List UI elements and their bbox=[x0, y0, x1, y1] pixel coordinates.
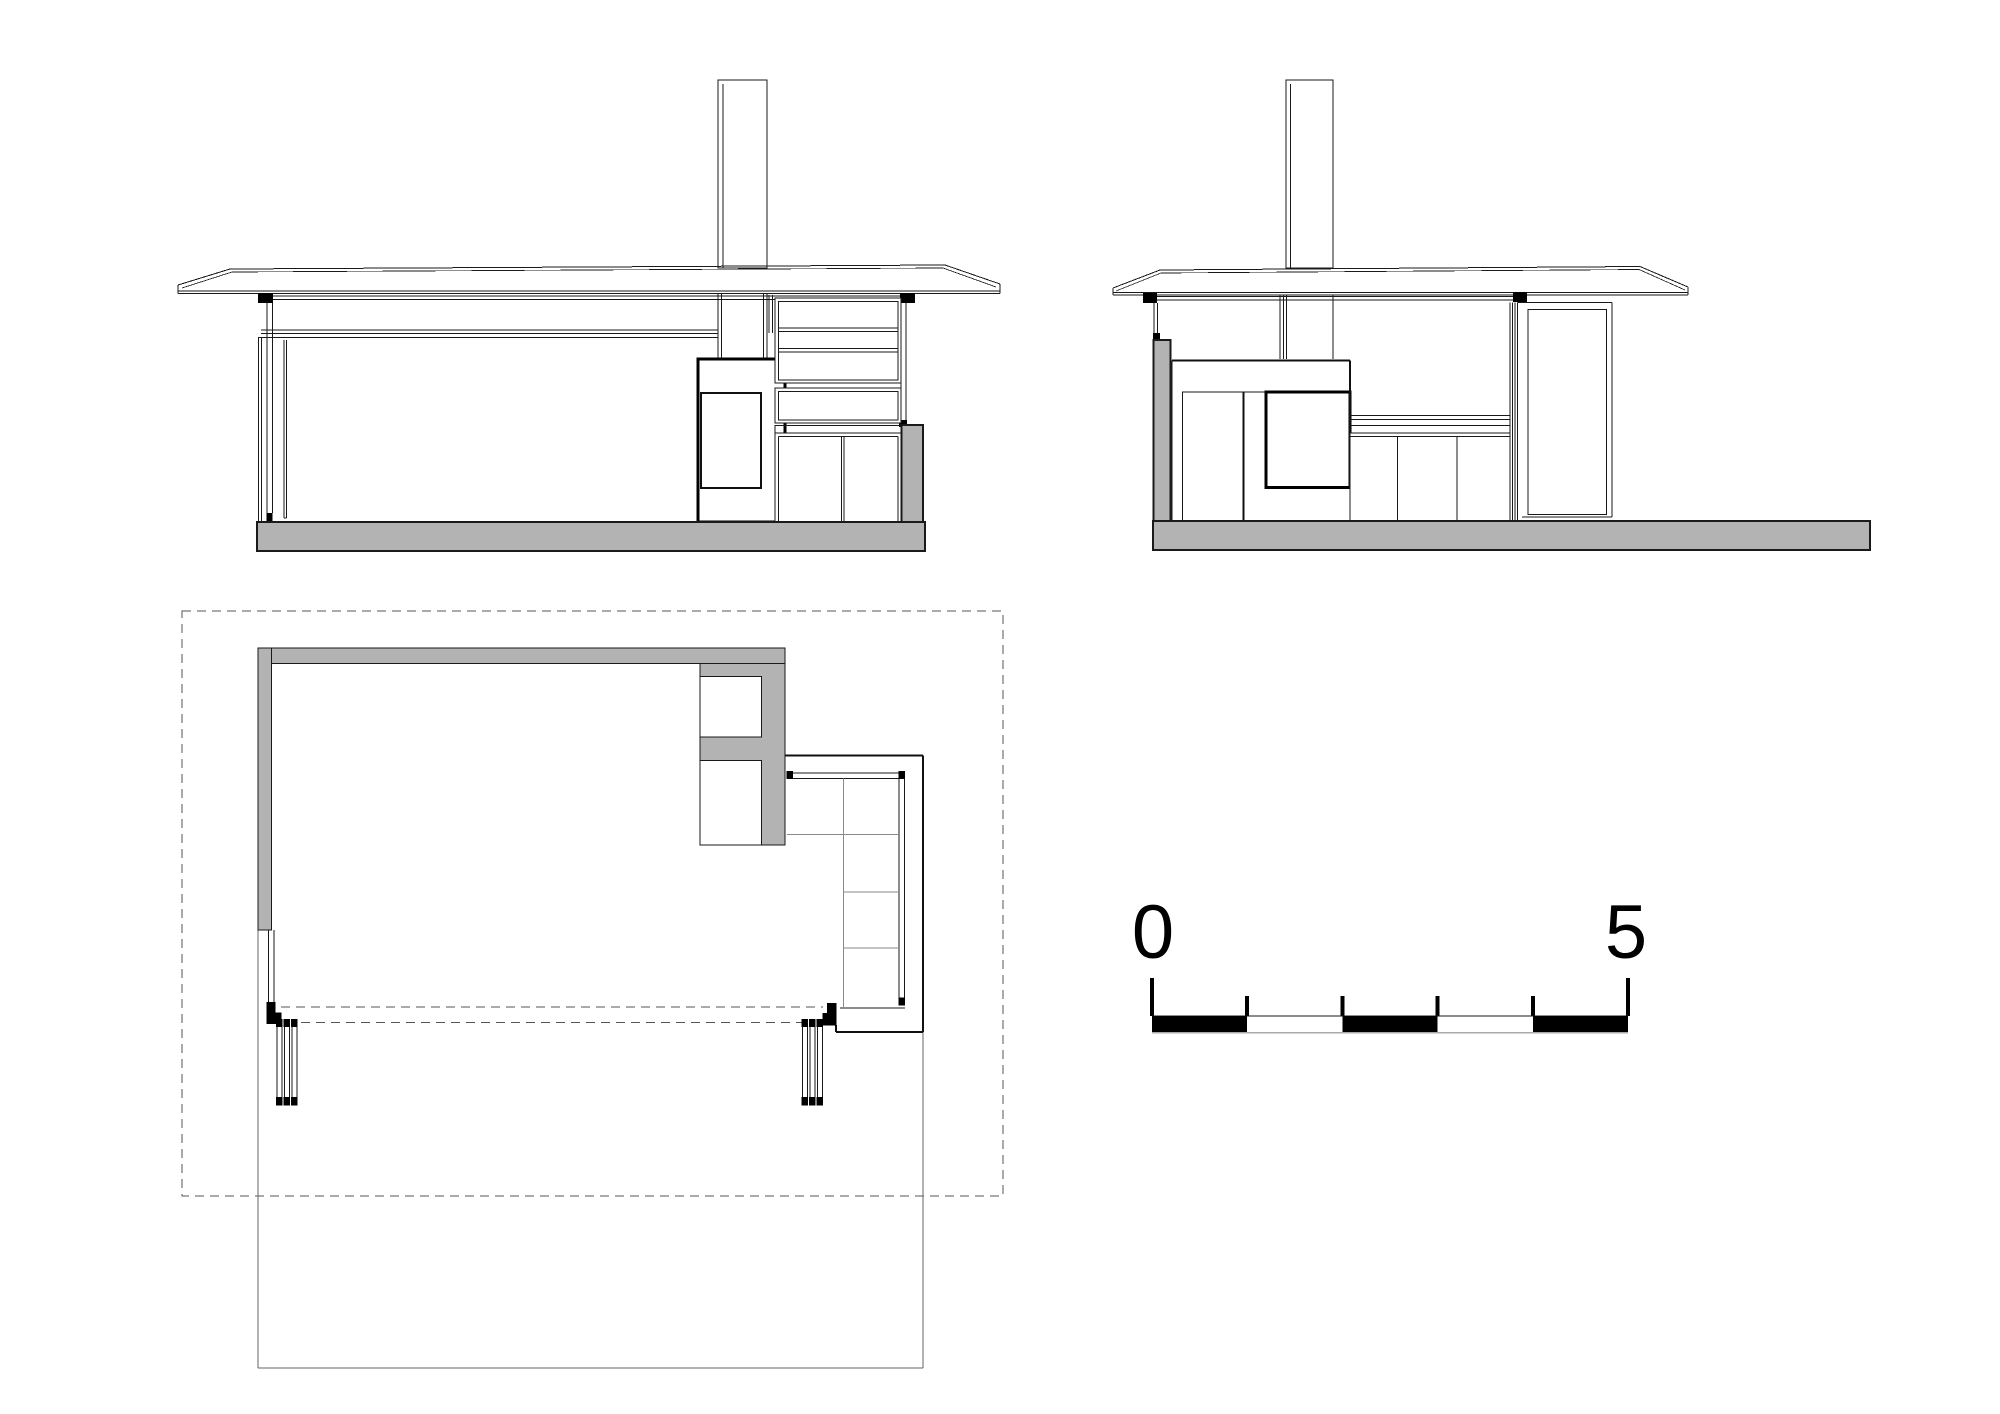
scale-segment-filled bbox=[1533, 1016, 1628, 1032]
sliding-panel bbox=[291, 1019, 298, 1106]
roof-connector-square-left bbox=[1143, 293, 1157, 303]
sill-band bbox=[1350, 416, 1510, 434]
fireplace-niche-lower bbox=[700, 761, 762, 846]
clerestory-band bbox=[258, 295, 773, 338]
roof-slab bbox=[1113, 267, 1688, 296]
cabinet-box bbox=[1350, 433, 1510, 522]
chimney-shaft bbox=[718, 294, 767, 360]
glazing-corner-square bbox=[787, 771, 794, 779]
roof-connector-square-right bbox=[1513, 292, 1527, 302]
door-assembly bbox=[1510, 303, 1612, 522]
upper-shelf-box bbox=[775, 298, 901, 383]
ground-slab bbox=[1153, 521, 1870, 550]
glazing-corner-square bbox=[899, 771, 906, 779]
plan-fireplace bbox=[700, 664, 785, 846]
scale-bar: 0 5 bbox=[1132, 890, 1647, 1033]
column-base bbox=[1153, 333, 1160, 340]
chimney bbox=[1286, 80, 1333, 268]
scale-segment-filled bbox=[1342, 1016, 1437, 1032]
ground-slab bbox=[257, 522, 925, 551]
chimney bbox=[718, 80, 767, 268]
scale-label-start: 0 bbox=[1132, 890, 1174, 975]
left-column-base bbox=[267, 513, 273, 522]
window-opening bbox=[1183, 392, 1244, 522]
roof-connector-square-left bbox=[258, 293, 273, 303]
door-leaf bbox=[1528, 310, 1607, 515]
sliding-panel bbox=[809, 1019, 816, 1106]
concrete-wall-section bbox=[1154, 340, 1171, 522]
roof-outline-dashed bbox=[182, 611, 1003, 1196]
left-column bbox=[1153, 303, 1160, 340]
architectural-drawing: 0 5 bbox=[0, 0, 2000, 1414]
firebox-opening bbox=[1266, 392, 1350, 488]
firebox-opening bbox=[701, 393, 761, 488]
cabinet-box bbox=[775, 433, 901, 522]
roof-slab bbox=[178, 265, 1000, 294]
roof-connector-square-right bbox=[900, 293, 915, 303]
scale-segment-filled bbox=[1152, 1016, 1247, 1032]
clerestory-band bbox=[1280, 295, 1333, 359]
shelving-unit bbox=[775, 298, 901, 433]
door-jamb-right bbox=[823, 1003, 837, 1026]
fireplace-section bbox=[698, 359, 785, 522]
sliding-panels-right bbox=[802, 1019, 824, 1106]
glazed-corner-band bbox=[785, 756, 923, 1033]
terrace-outline bbox=[258, 930, 923, 1368]
sliding-panels-left bbox=[276, 1019, 298, 1106]
concrete-wall-stub bbox=[902, 425, 924, 522]
sliding-panel bbox=[284, 1019, 291, 1106]
roof-top-inner-edge bbox=[1116, 270, 1685, 292]
section-end-view bbox=[1113, 80, 1870, 550]
glazing-corner-square bbox=[899, 998, 906, 1006]
roof-top-inner-edge bbox=[182, 268, 996, 288]
fireplace-wall bbox=[1172, 361, 1350, 523]
chimney-body bbox=[718, 80, 767, 268]
plan-wall-top bbox=[258, 648, 785, 664]
plan-left-window bbox=[258, 930, 282, 1024]
drawing-sheet: 0 5 bbox=[0, 0, 2000, 1414]
open-niche-box bbox=[775, 388, 901, 423]
section-long-view bbox=[178, 80, 1000, 551]
sliding-panel bbox=[817, 1019, 824, 1106]
counter-band bbox=[775, 426, 901, 434]
base-cabinet bbox=[775, 433, 901, 522]
floor-plan-view bbox=[182, 611, 1003, 1368]
plan-wall-left bbox=[258, 648, 272, 930]
sliding-panel bbox=[802, 1019, 809, 1106]
sliding-panel bbox=[276, 1019, 283, 1106]
chimney-body bbox=[1286, 80, 1333, 268]
low-cabinets bbox=[1350, 433, 1510, 522]
scale-label-end: 5 bbox=[1605, 890, 1647, 975]
fireplace-niche-upper bbox=[700, 677, 762, 738]
roof-connectors bbox=[1143, 292, 1527, 303]
